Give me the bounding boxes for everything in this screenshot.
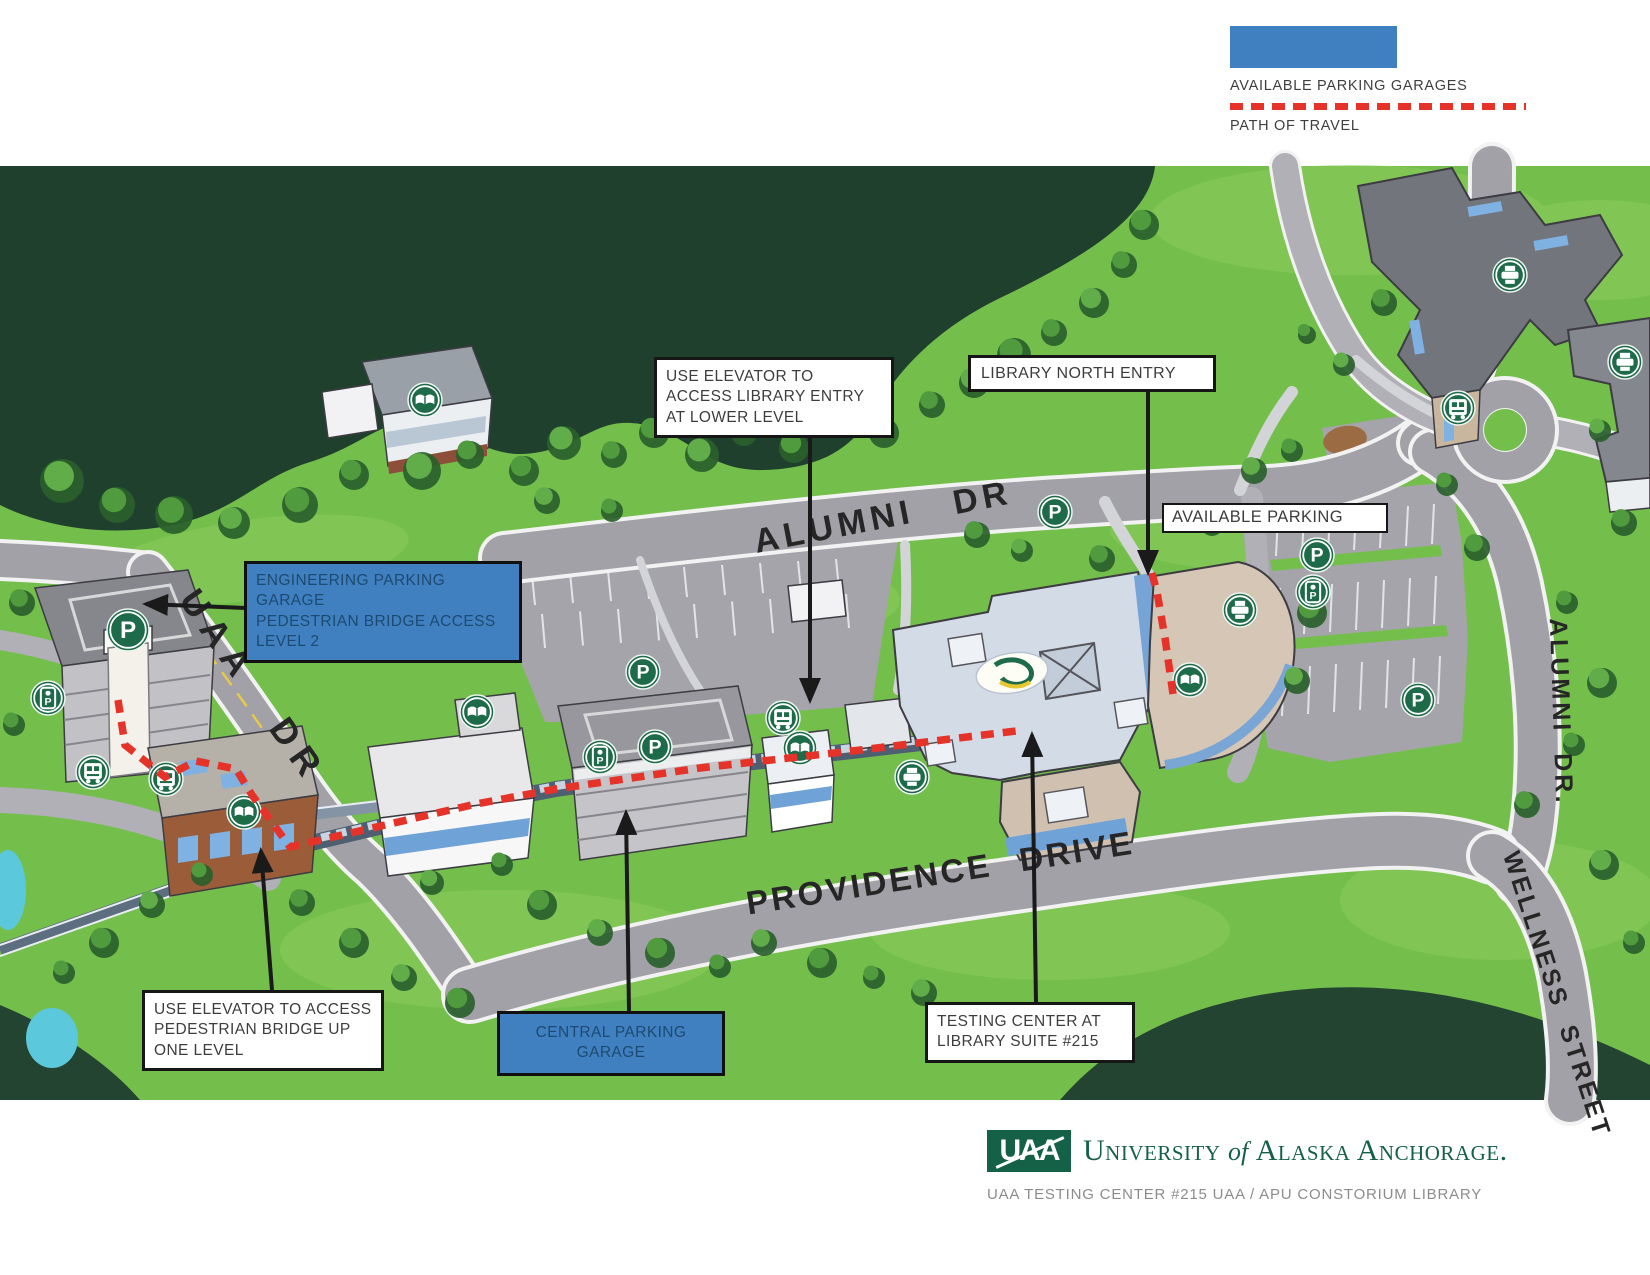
svg-text:P: P (1411, 689, 1424, 711)
bus-icon (766, 701, 800, 735)
callout-library-north-entry: LIBRARY NORTH ENTRY (968, 355, 1216, 392)
tree (1589, 668, 1609, 688)
tree (457, 440, 476, 459)
tree (710, 955, 725, 970)
svg-text:P: P (120, 617, 136, 644)
parking-icon: P (626, 655, 660, 689)
tree (285, 488, 309, 512)
bus-icon (1441, 391, 1475, 425)
university-name: University of Alaska Anchorage. (1083, 1134, 1508, 1168)
tree (1242, 457, 1260, 475)
tree (1372, 289, 1390, 307)
tree (91, 928, 111, 948)
print-copy-icon (1493, 258, 1527, 292)
branding: UAA University of Alaska Anchorage. UAA … (987, 1130, 1627, 1203)
tree (1081, 288, 1101, 308)
print-copy-icon (1608, 345, 1642, 379)
tree (687, 438, 710, 461)
tree (1042, 319, 1060, 337)
tree (341, 928, 361, 948)
university-name-part2: of (1228, 1137, 1248, 1166)
tree (912, 979, 930, 997)
parking-icon: P (638, 730, 672, 764)
legend-path-label: PATH OF TRAVEL (1230, 118, 1530, 134)
tree (54, 961, 69, 976)
university-name-part3: Alaska Anchorage. (1256, 1134, 1508, 1167)
svg-text:P: P (1309, 590, 1316, 602)
tree (447, 988, 467, 1008)
svg-text:P: P (596, 755, 603, 767)
tree (752, 929, 770, 947)
tree (1465, 534, 1483, 552)
tree (1282, 439, 1297, 454)
svg-text:P: P (1048, 501, 1061, 523)
tree (421, 870, 437, 886)
tree (1285, 667, 1303, 685)
tree (1591, 850, 1611, 870)
library-books-icon (1173, 663, 1207, 697)
tree (1090, 545, 1108, 563)
tree (1624, 931, 1639, 946)
tree (1131, 210, 1151, 230)
elevator-icon: P (583, 740, 617, 774)
tree (920, 391, 938, 409)
uaa-logo: UAA (987, 1130, 1071, 1172)
tree (1612, 509, 1630, 527)
print-copy-icon (1223, 593, 1257, 627)
tree (1298, 324, 1310, 336)
tree (341, 460, 361, 480)
tree (392, 964, 410, 982)
map-caption: UAA TESTING CENTER #215 UAA / APU CONSTO… (987, 1186, 1627, 1203)
tree (1437, 473, 1452, 488)
engineering-garage-line2: PEDESTRIAN BRIDGE ACCESS (256, 612, 510, 632)
callout-testing-center: TESTING CENTER AT LIBRARY SUITE #215 (925, 1002, 1135, 1063)
callout-available-parking: AVAILABLE PARKING (1162, 503, 1388, 533)
parking-icon: P (1401, 683, 1435, 717)
elevator-icon: P (31, 681, 65, 715)
callout-central-garage: CENTRAL PARKING GARAGE (497, 1011, 725, 1076)
tree (535, 487, 553, 505)
parking-icon: P (1300, 538, 1334, 572)
tree (4, 713, 19, 728)
tree (44, 461, 74, 491)
library-books-icon (460, 695, 494, 729)
svg-text:P: P (636, 661, 649, 683)
tree (406, 453, 432, 479)
callout-use-elevator-pedestrian: USE ELEVATOR TO ACCESS PEDESTRIAN BRIDGE… (142, 990, 384, 1071)
parking-garages-swatch (1230, 26, 1397, 68)
tree (10, 589, 28, 607)
tree (220, 507, 242, 529)
callout-engineering-garage: ENGINEERING PARKING GARAGE PEDESTRIAN BR… (244, 561, 522, 663)
tree (647, 938, 667, 958)
tree (1557, 591, 1572, 606)
tree (588, 919, 606, 937)
testing-center-line1: TESTING CENTER AT (937, 1012, 1123, 1032)
parking-icon: P (1038, 495, 1072, 529)
engineering-garage-line3: LEVEL 2 (256, 632, 510, 652)
tree (602, 441, 620, 459)
pond (26, 1008, 78, 1068)
callout-use-elevator-library: USE ELEVATOR TO ACCESS LIBRARY ENTRY AT … (654, 357, 894, 438)
page: PPPPPPPPP ALUMNI DR UAA DR PROVIDENCE DR… (0, 0, 1650, 1275)
tree (158, 497, 184, 523)
tree (549, 426, 572, 449)
svg-text:P: P (44, 696, 51, 708)
tree (1515, 791, 1533, 809)
svg-text:P: P (648, 736, 661, 758)
bus-icon (76, 755, 110, 789)
tree (492, 853, 507, 868)
tree (864, 966, 879, 981)
tree (602, 499, 617, 514)
path-of-travel-swatch (1230, 102, 1526, 111)
tree (1590, 419, 1605, 434)
tree (965, 521, 983, 539)
testing-center-line2: LIBRARY SUITE #215 (937, 1032, 1123, 1052)
tree (1012, 539, 1027, 554)
print-copy-icon (895, 760, 929, 794)
tree (1334, 353, 1349, 368)
tree (529, 890, 549, 910)
tree (511, 456, 531, 476)
elevator-icon: P (1296, 575, 1330, 609)
parking-icon: P (107, 609, 149, 651)
library-books-icon (408, 383, 442, 417)
svg-text:P: P (1310, 544, 1323, 566)
university-name-part1: University (1083, 1134, 1221, 1167)
tree (809, 948, 829, 968)
legend: AVAILABLE PARKING GARAGES PATH OF TRAVEL (1230, 26, 1530, 134)
tree (290, 889, 308, 907)
legend-garages-label: AVAILABLE PARKING GARAGES (1230, 78, 1530, 94)
tree (102, 488, 126, 512)
tree (1112, 251, 1130, 269)
tree (140, 891, 158, 909)
engineering-garage-line1: ENGINEERING PARKING GARAGE (256, 571, 461, 612)
tree (192, 863, 207, 878)
